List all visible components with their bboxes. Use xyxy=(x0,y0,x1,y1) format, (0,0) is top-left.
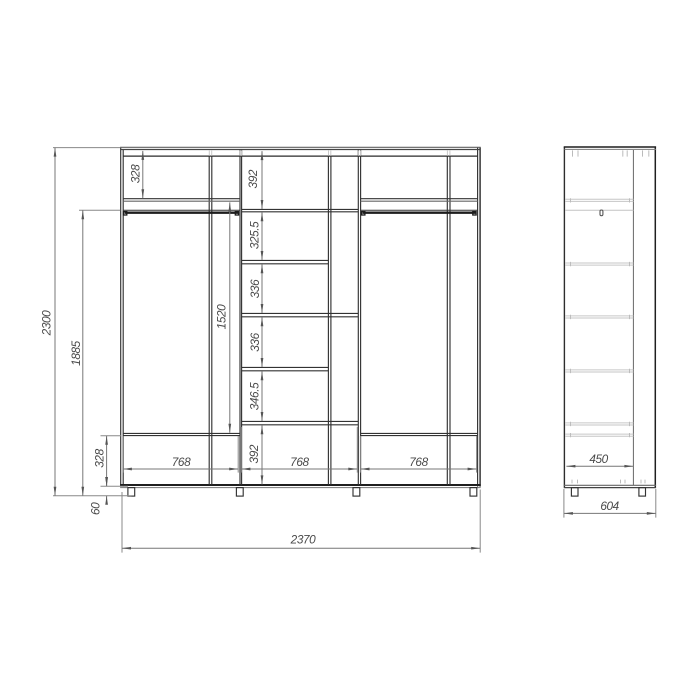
svg-text:1885: 1885 xyxy=(69,340,83,365)
svg-text:2370: 2370 xyxy=(290,533,316,547)
svg-text:336: 336 xyxy=(248,332,262,351)
svg-text:604: 604 xyxy=(600,499,619,513)
svg-text:2300: 2300 xyxy=(40,310,54,336)
svg-text:392: 392 xyxy=(247,444,261,463)
svg-text:328: 328 xyxy=(128,164,142,183)
svg-text:450: 450 xyxy=(589,452,608,466)
svg-text:392: 392 xyxy=(246,169,260,188)
svg-text:1520: 1520 xyxy=(214,304,228,329)
svg-text:768: 768 xyxy=(409,455,428,469)
svg-text:336: 336 xyxy=(248,279,262,298)
svg-text:768: 768 xyxy=(290,455,309,469)
svg-text:768: 768 xyxy=(172,455,191,469)
svg-text:346.5: 346.5 xyxy=(248,382,262,410)
svg-text:328: 328 xyxy=(93,448,107,467)
svg-text:325.5: 325.5 xyxy=(248,221,262,249)
svg-text:60: 60 xyxy=(89,502,103,515)
